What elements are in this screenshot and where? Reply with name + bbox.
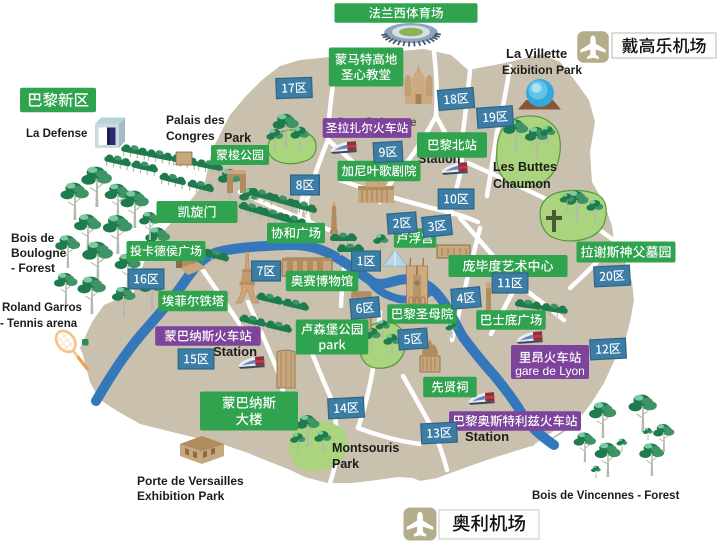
svg-text:La Villette: La Villette — [506, 46, 567, 61]
svg-text:Exhibition Park: Exhibition Park — [137, 489, 225, 503]
svg-text:Bois de: Bois de — [11, 231, 55, 245]
svg-text:Boulogne: Boulogne — [11, 246, 67, 260]
svg-text:- Forest: - Forest — [11, 261, 55, 275]
svg-text:Montsouris: Montsouris — [332, 441, 399, 455]
svg-text:Congres: Congres — [166, 129, 215, 143]
svg-text:Les Buttes: Les Buttes — [493, 160, 557, 174]
svg-text:Porte de Versailles: Porte de Versailles — [137, 474, 244, 488]
svg-text:Station: Station — [465, 429, 509, 444]
svg-text:gare de Lyon: gare de Lyon — [515, 364, 585, 378]
svg-text:Exibition Park: Exibition Park — [502, 63, 582, 77]
svg-text:Park: Park — [224, 131, 251, 145]
svg-text:Chaumon: Chaumon — [493, 177, 551, 191]
svg-text:La Defense: La Defense — [26, 128, 87, 140]
svg-text:Roland Garros: Roland Garros — [2, 302, 82, 314]
svg-text:Bois de Vincennes - Forest: Bois de Vincennes - Forest — [532, 490, 680, 502]
svg-text:Park: Park — [332, 457, 359, 471]
svg-text:Station: Station — [213, 344, 257, 359]
svg-text:Palais des: Palais des — [166, 113, 225, 127]
svg-text:- Tennis arena: - Tennis arena — [0, 318, 78, 330]
